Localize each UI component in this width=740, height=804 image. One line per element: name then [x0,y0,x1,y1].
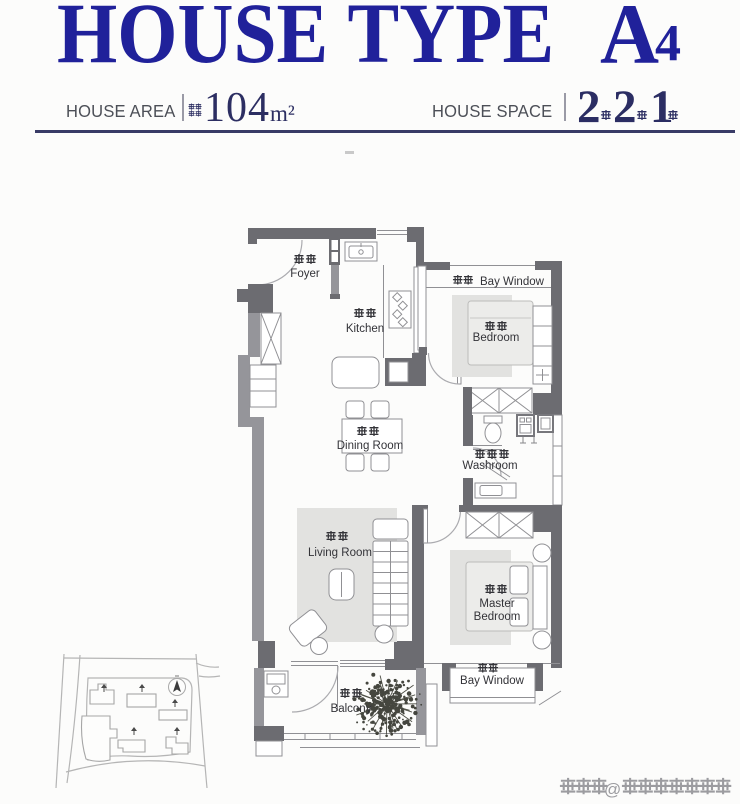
svg-text:Bedroom: Bedroom [473,332,520,344]
svg-text:Bedroom: Bedroom [474,611,521,623]
svg-text:Bay Window: Bay Window [480,276,545,288]
svg-text:Master: Master [479,598,514,610]
svg-text:Foyer: Foyer [290,268,320,280]
svg-text:Washroom: Washroom [462,460,517,472]
svg-text:1: 1 [650,81,674,133]
svg-text:@: @ [604,780,621,799]
svg-text:Living Room: Living Room [308,547,372,559]
svg-text:Dining Room: Dining Room [337,440,403,452]
svg-text:Kitchen: Kitchen [346,323,384,335]
svg-text:2: 2 [577,81,601,133]
svg-text:2: 2 [613,81,637,133]
svg-text:Balcony: Balcony [331,703,372,715]
svg-text:Bay Window: Bay Window [460,675,525,687]
